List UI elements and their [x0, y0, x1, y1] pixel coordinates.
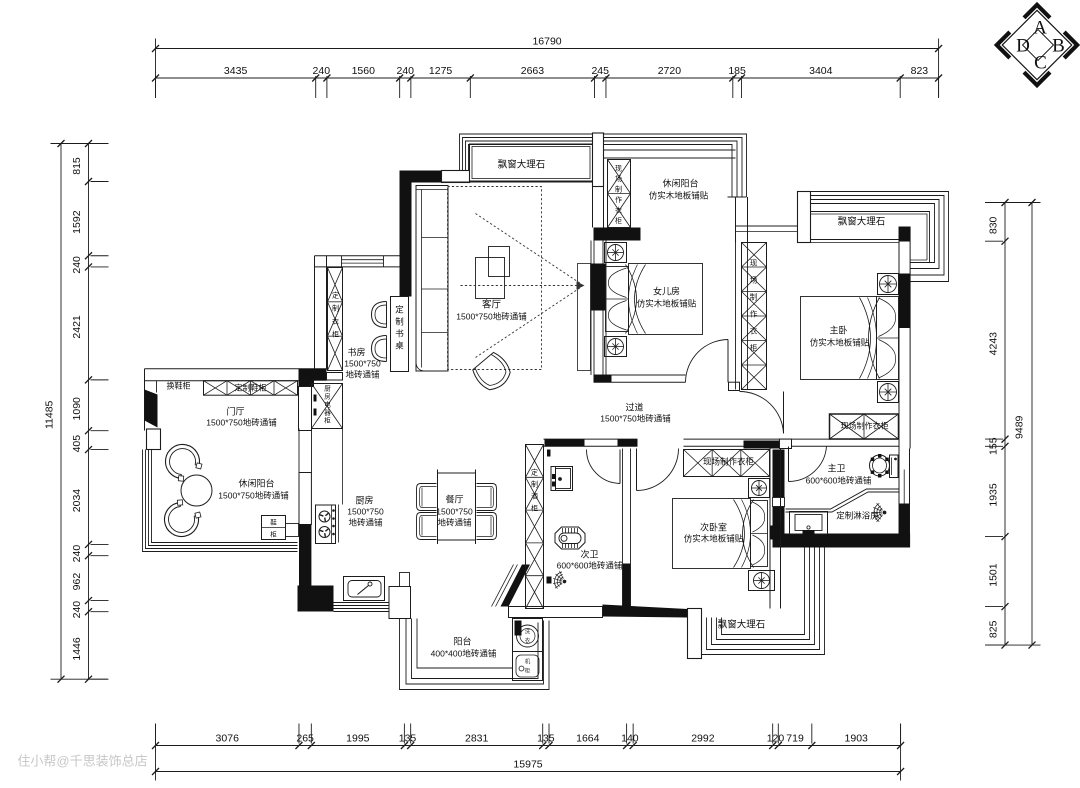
- svg-text:地砖通铺: 地砖通铺: [345, 370, 380, 380]
- svg-text:飘窗大理石: 飘窗大理石: [838, 216, 886, 228]
- svg-text:书房: 书房: [347, 347, 365, 358]
- svg-text:2992: 2992: [691, 733, 715, 745]
- svg-text:600*600地砖通铺: 600*600地砖通铺: [806, 476, 872, 486]
- svg-text:定: 定: [332, 291, 339, 300]
- svg-text:现: 现: [615, 165, 622, 173]
- svg-text:书: 书: [395, 329, 404, 339]
- svg-text:9489: 9489: [1014, 415, 1026, 439]
- svg-text:餐厅: 餐厅: [445, 494, 463, 505]
- svg-text:135: 135: [399, 733, 417, 745]
- svg-text:柜: 柜: [270, 530, 277, 539]
- svg-text:次卫: 次卫: [580, 549, 598, 560]
- svg-text:962: 962: [71, 573, 83, 591]
- svg-text:柜: 柜: [324, 416, 331, 425]
- svg-text:现场制作衣柜: 现场制作衣柜: [703, 457, 755, 467]
- svg-text:C: C: [1034, 53, 1047, 74]
- svg-text:2421: 2421: [71, 315, 83, 339]
- svg-text:柜: 柜: [525, 667, 531, 675]
- svg-text:1664: 1664: [576, 733, 600, 745]
- svg-text:4243: 4243: [988, 332, 1000, 356]
- svg-text:飘窗大理石: 飘窗大理石: [718, 619, 766, 631]
- svg-text:15975: 15975: [513, 759, 542, 771]
- svg-text:240: 240: [71, 601, 83, 619]
- svg-text:飘窗大理石: 飘窗大理石: [498, 159, 546, 171]
- svg-text:240: 240: [71, 545, 83, 563]
- svg-text:1500*750地砖通铺: 1500*750地砖通铺: [456, 312, 527, 322]
- svg-text:仿实木地板铺贴: 仿实木地板铺贴: [810, 338, 870, 348]
- svg-text:门厅: 门厅: [226, 406, 244, 417]
- svg-text:仿实木地板铺贴: 仿实木地板铺贴: [684, 534, 744, 544]
- svg-text:制: 制: [750, 292, 758, 302]
- svg-text:240: 240: [313, 65, 331, 77]
- svg-text:1090: 1090: [71, 397, 83, 421]
- svg-text:A: A: [1033, 18, 1047, 39]
- svg-text:现场制作衣柜: 现场制作衣柜: [841, 421, 889, 431]
- svg-text:11485: 11485: [44, 400, 56, 429]
- svg-text:1500*750: 1500*750: [347, 507, 384, 517]
- svg-text:240: 240: [71, 256, 83, 274]
- svg-text:场: 场: [615, 174, 622, 183]
- svg-text:1903: 1903: [845, 733, 869, 745]
- svg-text:120: 120: [767, 733, 785, 745]
- svg-text:1500*750地砖通铺: 1500*750地砖通铺: [218, 491, 289, 501]
- svg-text:265: 265: [296, 733, 314, 745]
- svg-text:衣: 衣: [615, 206, 622, 215]
- svg-text:823: 823: [911, 65, 929, 77]
- svg-text:女儿房: 女儿房: [653, 286, 680, 297]
- svg-text:1500*750地砖通铺: 1500*750地砖通铺: [600, 414, 671, 424]
- svg-text:地砖通铺: 地砖通铺: [437, 518, 472, 528]
- svg-text:厨: 厨: [324, 385, 331, 393]
- svg-text:制: 制: [531, 480, 538, 489]
- svg-text:定制淋浴房: 定制淋浴房: [836, 511, 879, 521]
- svg-text:1500*750: 1500*750: [436, 507, 473, 517]
- svg-text:制: 制: [395, 317, 404, 327]
- svg-text:柜: 柜: [615, 216, 622, 225]
- svg-text:定制鞋柜: 定制鞋柜: [235, 383, 267, 393]
- svg-text:住小帮@千思装饰总店: 住小帮@千思装饰总店: [17, 754, 147, 769]
- svg-text:休闲阳台: 休闲阳台: [662, 178, 698, 189]
- svg-text:柜: 柜: [750, 343, 758, 353]
- svg-text:1995: 1995: [346, 733, 370, 745]
- svg-text:825: 825: [988, 620, 1000, 638]
- svg-text:衣: 衣: [525, 637, 531, 645]
- svg-text:1500*750: 1500*750: [344, 359, 381, 369]
- svg-text:3435: 3435: [224, 65, 248, 77]
- svg-text:主卧: 主卧: [829, 325, 847, 336]
- svg-text:B: B: [1052, 36, 1065, 57]
- svg-text:400*400地砖通铺: 400*400地砖通铺: [431, 649, 497, 659]
- svg-text:定: 定: [395, 305, 404, 315]
- svg-text:1592: 1592: [71, 210, 83, 234]
- svg-text:地砖通铺: 地砖通铺: [348, 518, 383, 528]
- svg-text:2663: 2663: [521, 65, 545, 77]
- svg-text:D: D: [1016, 36, 1030, 57]
- svg-text:3404: 3404: [809, 65, 833, 77]
- svg-text:制: 制: [332, 304, 339, 313]
- svg-text:185: 185: [728, 65, 746, 77]
- svg-text:定: 定: [531, 468, 538, 477]
- svg-text:酒: 酒: [531, 493, 538, 501]
- svg-text:休闲阳台: 休闲阳台: [238, 478, 274, 489]
- svg-text:405: 405: [71, 435, 83, 453]
- svg-text:衣: 衣: [750, 326, 758, 336]
- svg-text:换鞋柜: 换鞋柜: [167, 381, 191, 391]
- svg-text:2831: 2831: [465, 733, 489, 745]
- svg-text:过道: 过道: [625, 402, 643, 413]
- svg-text:830: 830: [988, 216, 1000, 234]
- svg-text:场: 场: [750, 276, 758, 285]
- svg-text:1935: 1935: [988, 483, 1000, 507]
- svg-text:柜: 柜: [531, 504, 538, 513]
- svg-text:衣: 衣: [332, 317, 339, 326]
- svg-text:作: 作: [615, 195, 622, 204]
- svg-text:制: 制: [615, 185, 622, 194]
- svg-text:次卧室: 次卧室: [700, 522, 727, 533]
- svg-text:阳台: 阳台: [453, 636, 471, 647]
- svg-text:1446: 1446: [71, 637, 83, 661]
- svg-text:1500*750地砖通铺: 1500*750地砖通铺: [206, 418, 277, 428]
- svg-text:815: 815: [71, 157, 83, 175]
- svg-text:16790: 16790: [532, 36, 561, 48]
- svg-text:柜: 柜: [332, 330, 339, 339]
- svg-text:现: 现: [750, 259, 758, 268]
- svg-text:155: 155: [988, 437, 1000, 455]
- svg-text:600*600地砖通铺: 600*600地砖通铺: [557, 561, 623, 571]
- svg-text:240: 240: [396, 65, 414, 77]
- svg-text:器: 器: [324, 409, 331, 417]
- svg-text:厨房: 厨房: [355, 495, 373, 506]
- svg-text:1275: 1275: [429, 65, 453, 77]
- svg-text:245: 245: [591, 65, 609, 77]
- svg-text:房: 房: [324, 392, 331, 401]
- svg-text:作: 作: [750, 309, 758, 319]
- svg-text:1501: 1501: [988, 563, 1000, 587]
- svg-text:3076: 3076: [216, 733, 240, 745]
- svg-text:主卫: 主卫: [827, 463, 845, 474]
- svg-text:鞋: 鞋: [270, 518, 277, 527]
- svg-text:2034: 2034: [71, 489, 83, 513]
- svg-text:1560: 1560: [352, 65, 376, 77]
- svg-text:135: 135: [537, 733, 555, 745]
- svg-text:140: 140: [621, 733, 639, 745]
- svg-text:电: 电: [324, 400, 331, 409]
- svg-text:2720: 2720: [658, 65, 682, 77]
- svg-text:洗: 洗: [525, 628, 531, 636]
- svg-text:仿实木地板铺贴: 仿实木地板铺贴: [649, 191, 709, 201]
- svg-text:桌: 桌: [395, 341, 404, 351]
- svg-text:机: 机: [525, 658, 531, 666]
- svg-text:仿实木地板铺贴: 仿实木地板铺贴: [637, 299, 697, 309]
- svg-text:客厅: 客厅: [482, 299, 502, 311]
- svg-text:719: 719: [786, 733, 804, 745]
